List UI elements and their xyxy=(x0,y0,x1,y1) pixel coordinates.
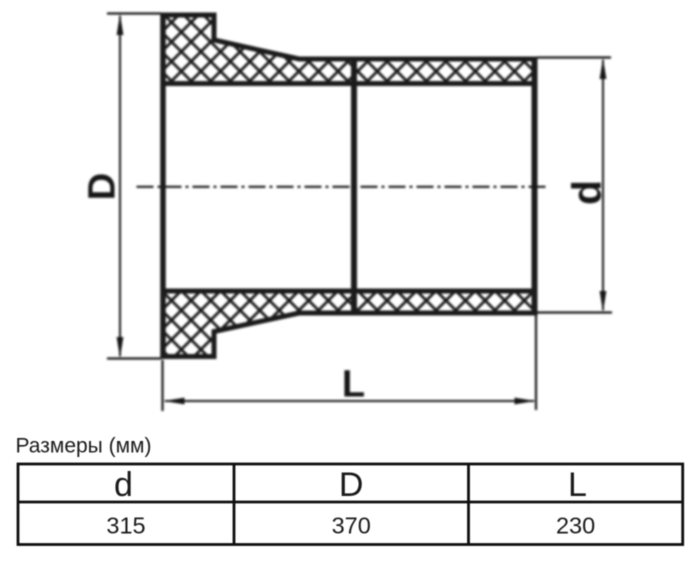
svg-text:Размеры (мм): Размеры (мм) xyxy=(16,435,152,458)
svg-text:D: D xyxy=(339,466,364,504)
svg-text:370: 370 xyxy=(332,513,371,539)
svg-text:D: D xyxy=(82,173,124,200)
svg-text:L: L xyxy=(568,466,587,504)
svg-text:315: 315 xyxy=(106,513,145,539)
svg-text:d: d xyxy=(564,180,610,205)
svg-text:230: 230 xyxy=(556,513,595,539)
svg-text:L: L xyxy=(342,364,365,406)
svg-text:d: d xyxy=(114,466,133,504)
